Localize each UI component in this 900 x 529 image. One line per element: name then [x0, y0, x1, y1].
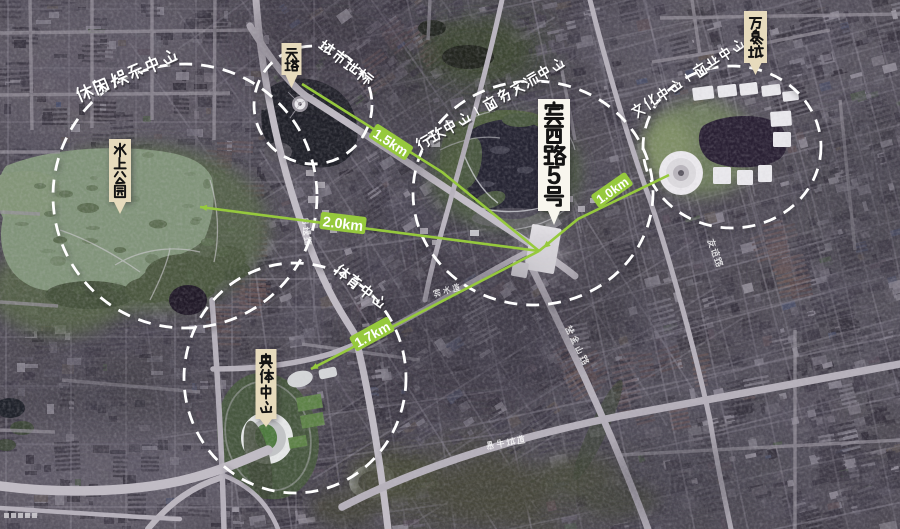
svg-text:5: 5: [547, 160, 561, 190]
